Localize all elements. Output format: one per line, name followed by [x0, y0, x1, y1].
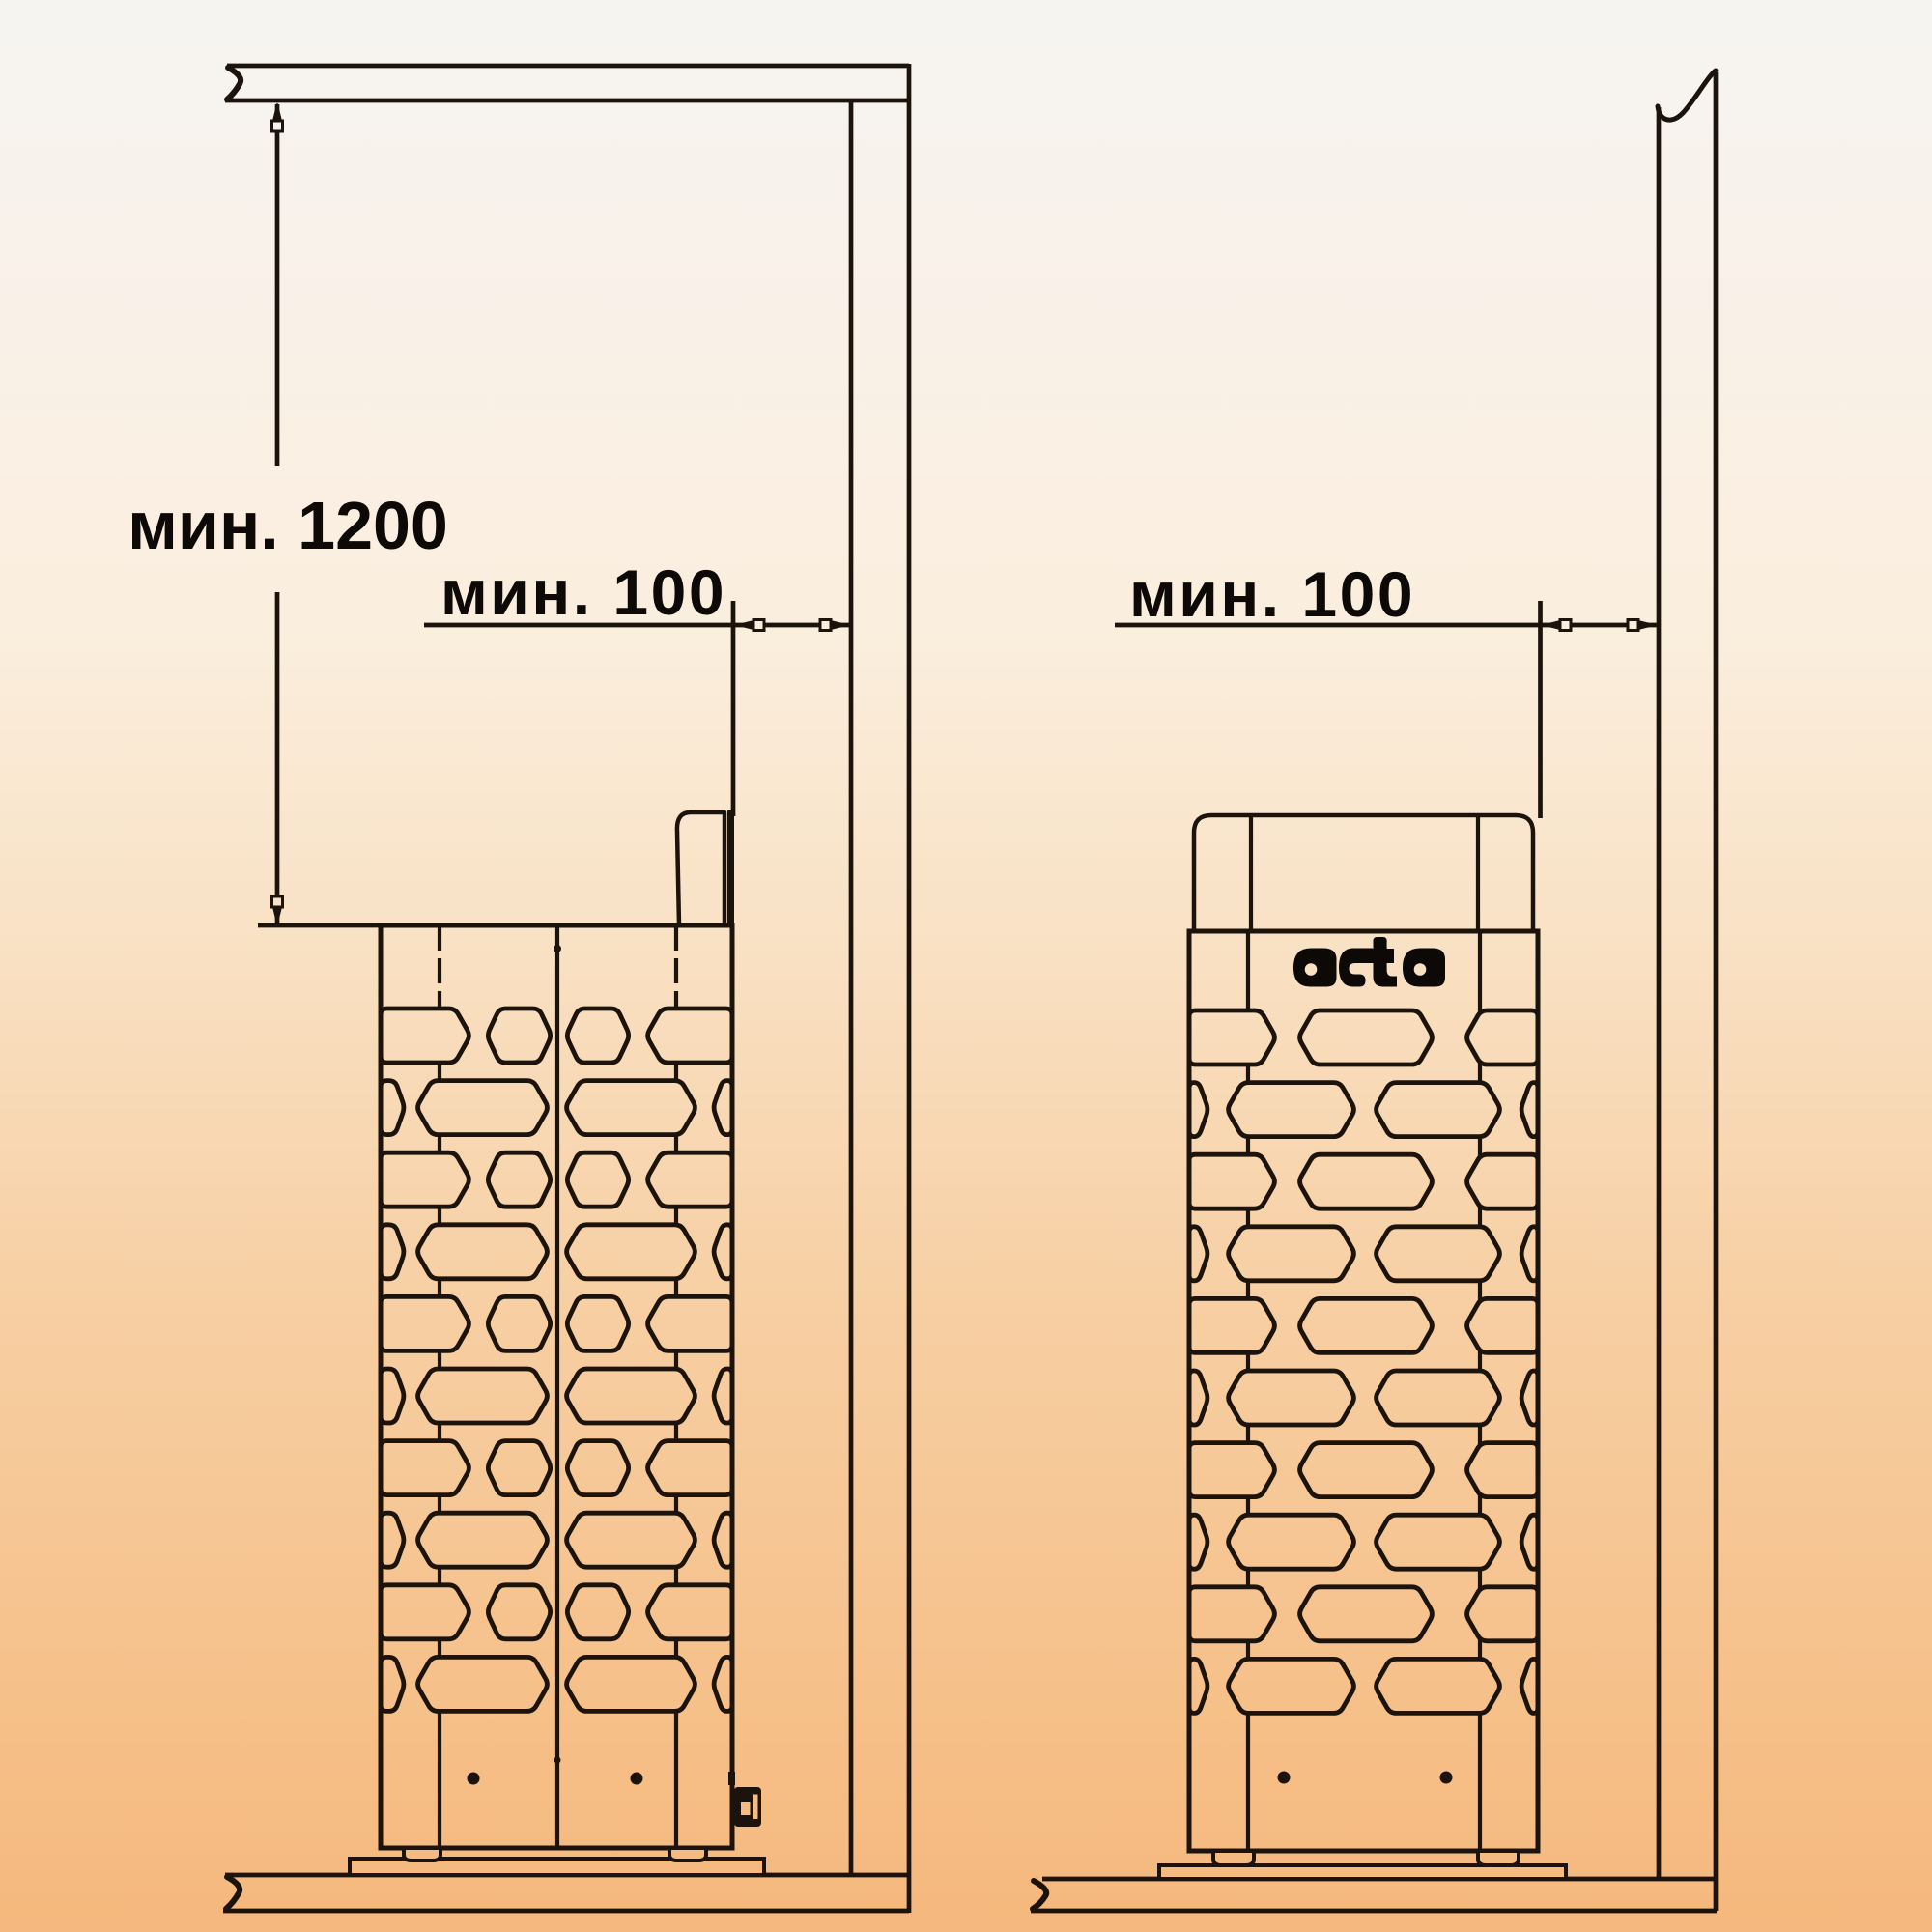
svg-text:мин. 1200: мин. 1200 [128, 488, 448, 563]
svg-text:мин. 100: мин. 100 [1129, 558, 1415, 630]
svg-text:мин. 100: мин. 100 [440, 556, 726, 628]
